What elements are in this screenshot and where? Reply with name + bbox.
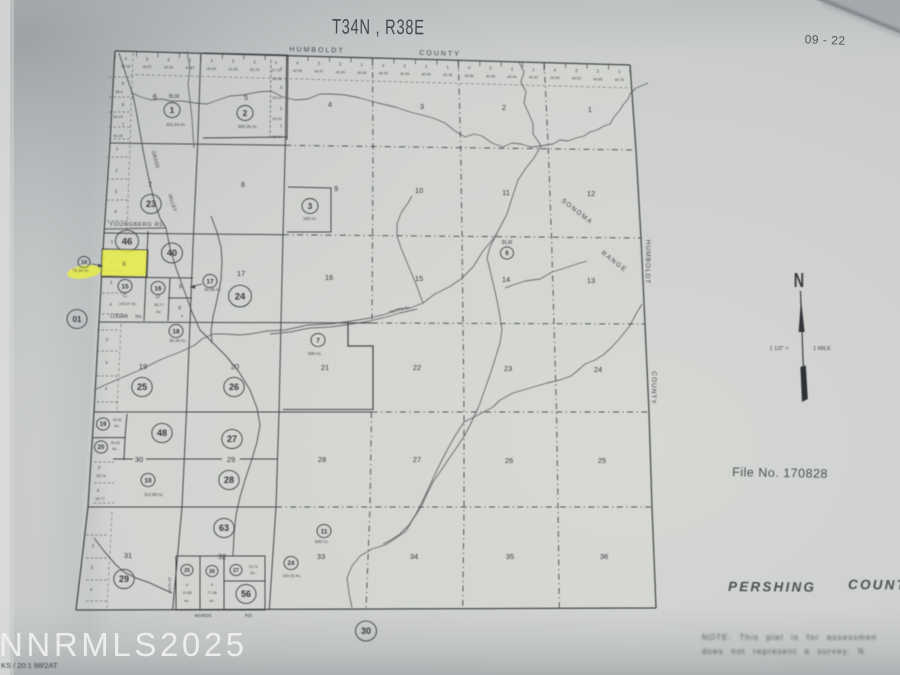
- svg-text:433.52 Ac.: 433.52 Ac.: [283, 573, 302, 578]
- svg-text:40.46: 40.46: [486, 74, 495, 78]
- svg-text:COUNT: COUNT: [848, 577, 900, 593]
- svg-text:File No. 170828: File No. 170828: [732, 465, 828, 481]
- svg-text:27: 27: [233, 568, 239, 574]
- svg-text:78.42: 78.42: [112, 418, 122, 422]
- svg-text:09 - 22: 09 - 22: [804, 32, 845, 47]
- svg-text:160 Ac.: 160 Ac.: [303, 216, 317, 221]
- svg-text:38.0: 38.0: [115, 90, 122, 94]
- svg-text:422.44 Ac.: 422.44 Ac.: [166, 122, 186, 127]
- svg-text:21: 21: [321, 363, 329, 372]
- svg-text:COUNTY: COUNTY: [650, 371, 658, 405]
- svg-text:HUMBOLDT: HUMBOLDT: [644, 240, 652, 285]
- svg-text:BLM: BLM: [169, 94, 179, 100]
- svg-text:40.43: 40.43: [421, 73, 430, 77]
- svg-text:33: 33: [317, 552, 325, 561]
- svg-text:COUNTY: COUNTY: [419, 50, 461, 58]
- svg-text:4: 4: [97, 488, 100, 494]
- svg-text:Ac.: Ac.: [112, 447, 118, 451]
- svg-text:SIXTH ST: SIXTH ST: [168, 576, 172, 593]
- svg-text:9: 9: [334, 184, 338, 193]
- svg-text:36: 36: [600, 552, 608, 561]
- svg-text:40.85: 40.85: [593, 77, 602, 81]
- svg-text:24: 24: [235, 291, 246, 302]
- svg-text:27: 27: [413, 455, 421, 464]
- svg-text:15: 15: [121, 283, 129, 290]
- svg-text:79.34 Ac.: 79.34 Ac.: [72, 268, 89, 273]
- svg-text:40.30: 40.30: [336, 70, 345, 74]
- svg-text:4: 4: [181, 314, 183, 318]
- svg-text:29: 29: [227, 455, 235, 464]
- svg-text:16: 16: [325, 273, 333, 282]
- svg-text:T34N , R38E: T34N , R38E: [332, 15, 425, 39]
- svg-text:Ac.: Ac.: [156, 310, 162, 314]
- svg-text:4: 4: [211, 583, 213, 587]
- svg-text:40.00: 40.00: [207, 67, 216, 71]
- svg-text:C: C: [123, 293, 127, 299]
- svg-text:74.85: 74.85: [182, 591, 192, 595]
- svg-text:40.45: 40.45: [550, 76, 559, 80]
- svg-text:40.34: 40.34: [400, 72, 409, 76]
- svg-text:BLM: BLM: [502, 240, 512, 246]
- svg-text:N: N: [794, 269, 804, 292]
- svg-text:29.08: 29.08: [272, 77, 282, 81]
- svg-text:8: 8: [122, 261, 126, 268]
- svg-text:19: 19: [100, 422, 107, 428]
- svg-text:3: 3: [308, 202, 313, 211]
- svg-text:40.42: 40.42: [529, 76, 538, 80]
- svg-text:7: 7: [316, 337, 320, 344]
- svg-text:12: 12: [587, 189, 595, 198]
- svg-text:11: 11: [502, 188, 510, 197]
- svg-text:1: 1: [588, 105, 592, 114]
- svg-text:Ac.: Ac.: [184, 599, 190, 603]
- svg-text:3: 3: [420, 102, 424, 111]
- svg-text:LOGAN: LOGAN: [110, 314, 128, 320]
- svg-text:40.75: 40.75: [615, 78, 624, 82]
- svg-text:80.77: 80.77: [154, 303, 164, 307]
- svg-text:28.44: 28.44: [272, 135, 282, 139]
- svg-text:YOUNGBERG RD.: YOUNGBERG RD.: [109, 222, 166, 228]
- svg-text:35: 35: [506, 552, 514, 561]
- svg-text:27: 27: [227, 434, 237, 444]
- svg-text:14: 14: [81, 260, 87, 266]
- svg-text:2: 2: [502, 103, 506, 112]
- svg-text:193.07 Ac.: 193.07 Ac.: [119, 302, 137, 306]
- svg-text:4: 4: [186, 583, 188, 587]
- svg-text:40.93: 40.93: [572, 77, 581, 81]
- svg-text:1 1/2" ≈: 1 1/2" ≈: [769, 346, 788, 352]
- svg-text:15: 15: [415, 274, 423, 283]
- svg-text:77.98: 77.98: [207, 591, 217, 595]
- svg-text:10: 10: [415, 186, 423, 195]
- svg-text:40.48: 40.48: [443, 73, 452, 77]
- svg-text:PERSHING: PERSHING: [728, 579, 816, 595]
- svg-text:25: 25: [598, 456, 606, 465]
- svg-text:3: 3: [98, 465, 101, 471]
- svg-text:1: 1: [170, 106, 175, 115]
- svg-text:35.79: 35.79: [96, 474, 106, 478]
- svg-text:14: 14: [502, 275, 510, 284]
- svg-text:11: 11: [321, 528, 328, 535]
- svg-text:24: 24: [594, 365, 602, 374]
- svg-text:46: 46: [122, 236, 133, 247]
- svg-text:40.55: 40.55: [293, 69, 302, 73]
- svg-text:40.44 Ac.: 40.44 Ac.: [169, 338, 186, 343]
- svg-text:13: 13: [587, 276, 595, 285]
- svg-text:18: 18: [172, 328, 180, 335]
- svg-text:25: 25: [184, 568, 190, 574]
- svg-text:29: 29: [119, 574, 129, 584]
- svg-text:NNRMLS2025: NNRMLS2025: [0, 626, 248, 663]
- svg-text:8: 8: [241, 180, 245, 189]
- svg-text:40.73: 40.73: [250, 68, 259, 72]
- svg-text:does not represent a surve: does not represent a survey. N: [702, 647, 865, 656]
- svg-text:40.47: 40.47: [314, 70, 323, 74]
- svg-text:28: 28: [224, 475, 234, 485]
- svg-text:35.77: 35.77: [95, 497, 105, 501]
- svg-text:56: 56: [241, 589, 251, 599]
- svg-text:53.14: 53.14: [113, 115, 123, 119]
- svg-text:22: 22: [413, 363, 421, 372]
- svg-text:20: 20: [98, 445, 105, 451]
- svg-text:KS / 20:1 98/2AT: KS / 20:1 98/2AT: [1, 661, 58, 670]
- svg-text:40.29: 40.29: [379, 72, 388, 76]
- svg-text:30: 30: [135, 455, 143, 464]
- svg-text:25: 25: [137, 382, 147, 392]
- svg-text:01: 01: [73, 315, 82, 324]
- svg-text:23: 23: [504, 364, 512, 373]
- svg-text:2: 2: [243, 109, 248, 118]
- svg-text:24: 24: [288, 560, 295, 567]
- svg-text:28: 28: [318, 455, 326, 464]
- svg-text:78.43: 78.43: [110, 441, 120, 445]
- svg-text:34: 34: [410, 552, 418, 561]
- svg-text:40.50: 40.50: [464, 74, 473, 78]
- svg-text:53.18: 53.18: [113, 134, 123, 138]
- svg-text:40.57: 40.57: [143, 65, 152, 69]
- svg-text:40.44: 40.44: [507, 75, 516, 79]
- svg-text:40.40: 40.40: [164, 66, 173, 70]
- svg-text:31: 31: [124, 551, 132, 560]
- svg-text:640 Ac.: 640 Ac.: [315, 539, 329, 544]
- svg-text:30: 30: [361, 626, 371, 636]
- svg-text:Ac.: Ac.: [250, 571, 256, 575]
- svg-text:4: 4: [328, 100, 332, 109]
- svg-text:17: 17: [206, 278, 214, 285]
- svg-text:24.03: 24.03: [272, 117, 282, 121]
- svg-text:580.35 Ac.: 580.35 Ac.: [238, 124, 258, 129]
- svg-text:41.00: 41.00: [228, 67, 237, 71]
- svg-text:D: D: [156, 294, 160, 300]
- svg-text:1 MILE: 1 MILE: [813, 346, 831, 352]
- svg-text:73.73: 73.73: [248, 565, 258, 569]
- svg-text:600 Ac.: 600 Ac.: [308, 351, 322, 356]
- svg-text:48: 48: [157, 428, 167, 438]
- svg-text:312.88 Ac.: 312.88 Ac.: [144, 492, 164, 497]
- svg-text:16: 16: [154, 285, 162, 292]
- svg-text:26: 26: [505, 456, 513, 465]
- svg-text:10: 10: [144, 477, 152, 484]
- svg-text:26: 26: [229, 382, 239, 392]
- svg-text:17: 17: [237, 269, 245, 278]
- svg-text:Ac.: Ac.: [209, 599, 215, 603]
- svg-text:63: 63: [219, 523, 229, 533]
- svg-text:26: 26: [209, 569, 215, 575]
- svg-text:Ac.: Ac.: [114, 424, 120, 428]
- svg-text:NOTE: This plat is for as: NOTE: This plat is for assessmen: [702, 633, 877, 642]
- svg-text:WARDS: WARDS: [195, 613, 212, 618]
- svg-text:RD.: RD.: [245, 613, 253, 618]
- svg-text:RD.: RD.: [135, 314, 142, 319]
- svg-text:40.28: 40.28: [357, 71, 366, 75]
- svg-text:24.03: 24.03: [272, 96, 282, 100]
